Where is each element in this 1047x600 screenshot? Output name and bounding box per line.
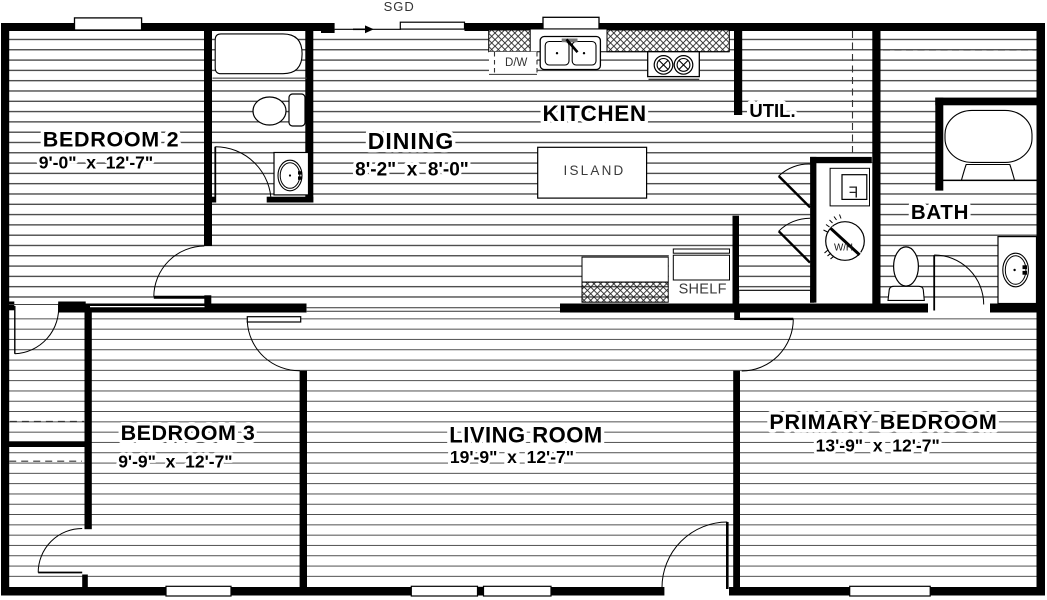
- svg-text:8'-2" x 8'-0": 8'-2" x 8'-0": [355, 159, 469, 180]
- svg-text:9'-0" x 12'-7": 9'-0" x 12'-7": [39, 153, 153, 173]
- svg-text:BATH: BATH: [911, 201, 969, 224]
- svg-text:SHELF: SHELF: [679, 282, 727, 298]
- svg-text:BEDROOM 3: BEDROOM 3: [121, 421, 256, 445]
- svg-text:KITCHEN: KITCHEN: [542, 101, 646, 126]
- svg-text:ISLAND: ISLAND: [564, 163, 626, 178]
- svg-text:F: F: [849, 185, 858, 202]
- svg-text:D/W: D/W: [505, 57, 528, 69]
- svg-text:LIVING ROOM: LIVING ROOM: [449, 423, 602, 448]
- svg-text:9'-9" x 12'-7": 9'-9" x 12'-7": [118, 452, 232, 472]
- svg-text:19'-9" x 12'-7": 19'-9" x 12'-7": [450, 447, 574, 467]
- svg-text:DINING: DINING: [368, 128, 455, 154]
- svg-text:PRIMARY BEDROOM: PRIMARY BEDROOM: [769, 410, 997, 434]
- svg-text:UTIL.: UTIL.: [749, 100, 795, 121]
- svg-text:W/H: W/H: [834, 243, 853, 254]
- svg-text:13'-9" x 12'-7": 13'-9" x 12'-7": [816, 436, 940, 456]
- svg-text:BEDROOM 2: BEDROOM 2: [43, 127, 180, 151]
- svg-text:SGD: SGD: [384, 0, 415, 14]
